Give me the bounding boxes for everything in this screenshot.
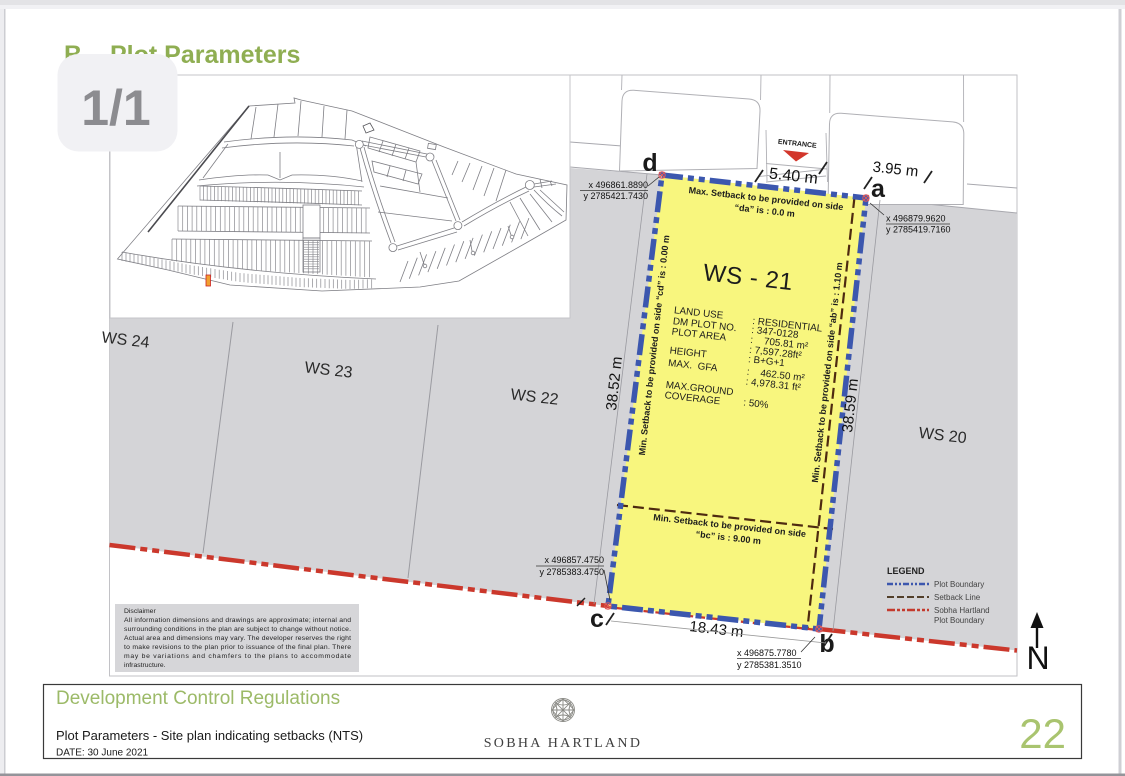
svg-text:y 2785419.7160: y 2785419.7160 (886, 225, 951, 235)
svg-text:Actual area and dimensions may: Actual area and dimensions may vary. The… (124, 635, 351, 642)
svg-text:x 496861.8890: x 496861.8890 (588, 180, 648, 190)
svg-text:b: b (819, 630, 834, 658)
svg-text:d: d (642, 149, 657, 177)
svg-text:c: c (590, 605, 604, 633)
svg-text:x 496875.7780: x 496875.7780 (737, 648, 797, 658)
svg-text:surrounding conditions in the: surrounding conditions in the plan are s… (124, 626, 351, 633)
svg-text:N: N (1026, 640, 1049, 676)
svg-text:DATE: 30 June 2021: DATE: 30 June 2021 (56, 748, 149, 759)
svg-text:may be variations and chamfers: may be variations and chamfers to the pl… (124, 653, 351, 660)
svg-text:Development Control Regulation: Development Control Regulations (56, 688, 340, 709)
svg-text:LEGEND: LEGEND (887, 566, 925, 576)
svg-text:y 2785383.4750: y 2785383.4750 (539, 567, 604, 577)
svg-text:Plot Parameters - Site plan in: Plot Parameters - Site plan indicating s… (56, 728, 363, 743)
svg-text:1/1: 1/1 (81, 80, 151, 136)
svg-text:All information dimensions and: All information dimensions and drawings … (124, 617, 351, 624)
svg-text:x 496879.9620: x 496879.9620 (886, 214, 946, 224)
svg-text:x 496857.4750: x 496857.4750 (544, 555, 604, 565)
svg-text:22: 22 (1019, 710, 1066, 757)
svg-text:Setback Line: Setback Line (934, 593, 981, 602)
svg-text:Disclaimer: Disclaimer (124, 608, 156, 615)
svg-text:Plot Boundary: Plot Boundary (934, 580, 984, 589)
svg-text:y 2785381.3510: y 2785381.3510 (737, 660, 802, 670)
svg-text:y 2785421.7430: y 2785421.7430 (583, 191, 648, 201)
svg-text:to make revisions to the plan: to make revisions to the plan prior to i… (124, 644, 351, 651)
svg-text:SOBHA HARTLAND: SOBHA HARTLAND (484, 736, 643, 751)
svg-text:Sobha Hartland: Sobha Hartland (934, 606, 990, 615)
svg-text:infrastructure.: infrastructure. (124, 662, 166, 669)
svg-text:Plot Boundary: Plot Boundary (934, 616, 984, 625)
svg-text:a: a (871, 175, 886, 203)
